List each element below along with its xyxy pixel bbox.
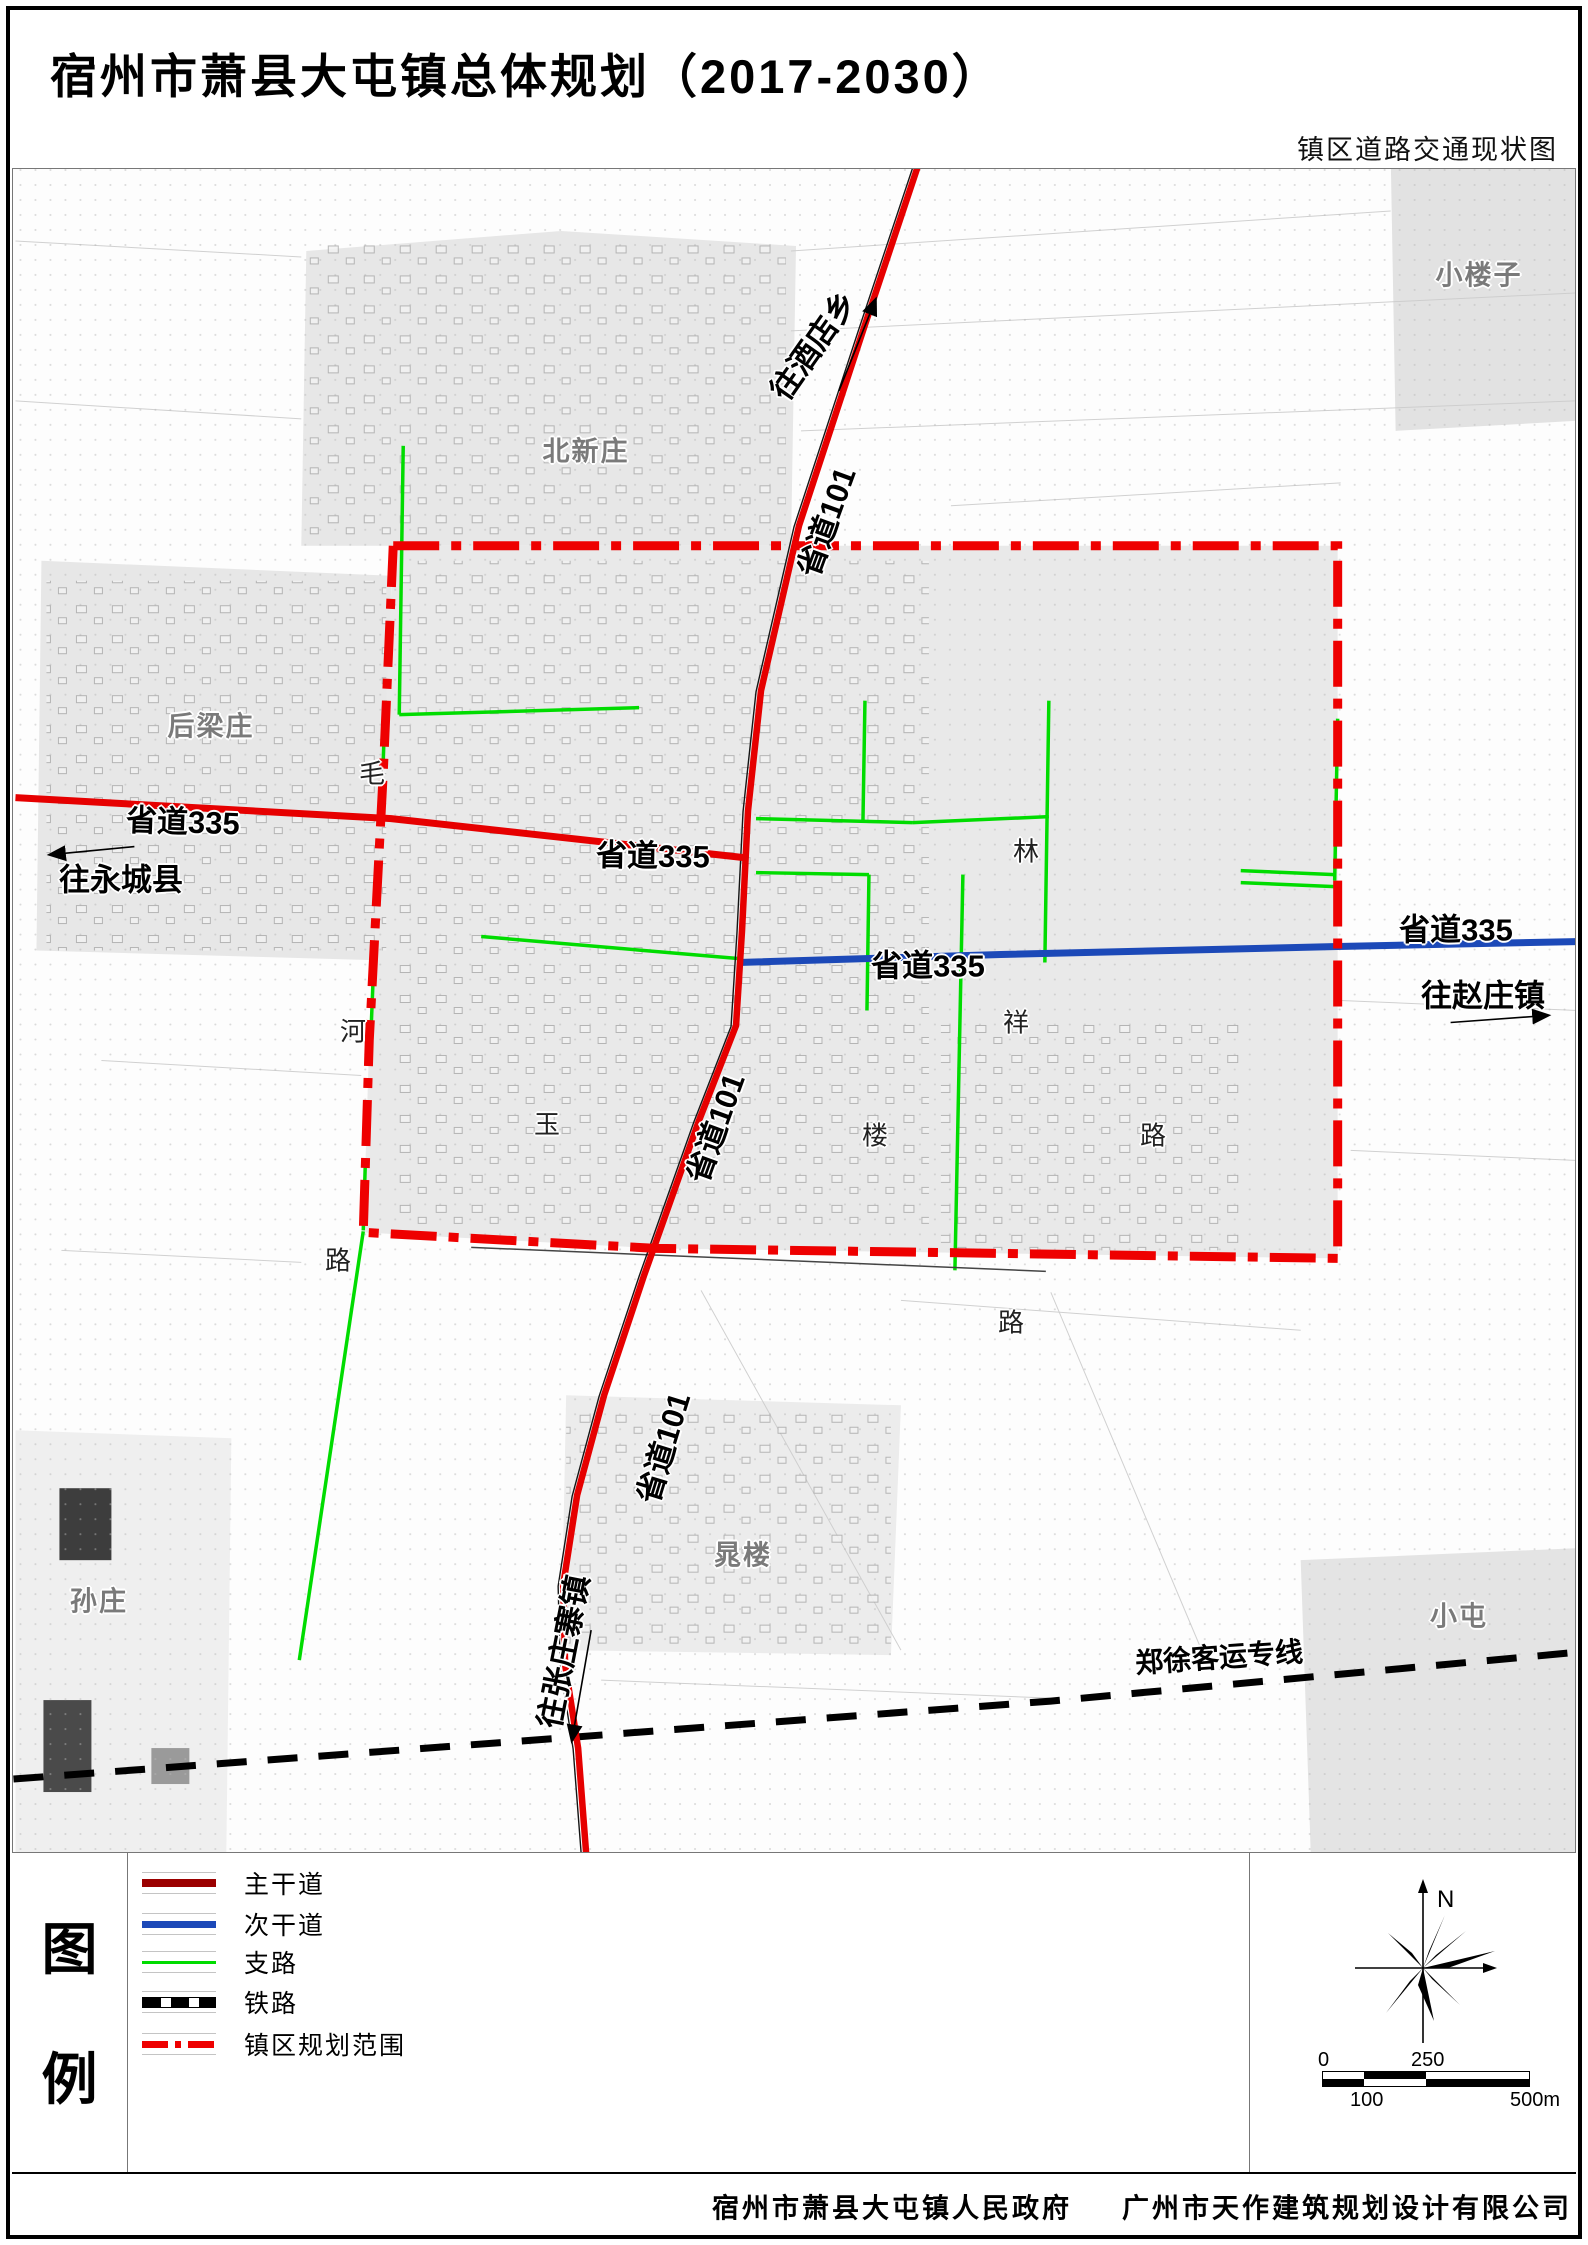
legend-item-secondary-road: 次干道 <box>142 1911 325 1937</box>
legend-swatch-secondary-road <box>142 1913 216 1935</box>
legend-item-main-road: 主干道 <box>142 1870 325 1896</box>
plan-sheet: 宿州市萧县大屯镇总体规划（2017-2030） 镇区道路交通现状图 <box>0 0 1588 2245</box>
legend-label-main-road: 主干道 <box>244 1865 325 1901</box>
legend-label-planning-boundary: 镇区规划范围 <box>244 2026 406 2062</box>
map-label-char-lu-south: 路 <box>998 1303 1024 1340</box>
map-label-to-yongchengxian: 往永城县 <box>59 855 183 900</box>
map-label-sunzhuang: 孙庄 <box>70 1580 128 1619</box>
scale-bar-body <box>1322 2071 1530 2087</box>
footer-design-firm: 广州市天作建筑规划设计有限公司 <box>1122 2187 1572 2226</box>
scale-tick-500m: 500m <box>1510 2089 1560 2112</box>
legend-swatch-railway <box>142 1991 216 2013</box>
legend-heading: 图 例 <box>12 1853 127 2172</box>
map-label-char-he: 河 <box>340 1012 366 1049</box>
legend-rows: 主干道次干道支路铁路镇区规划范围 <box>142 1853 1242 2172</box>
map-canvas: 省道335省道335省道335省道335省道101省道101省道101往酒店乡往… <box>12 168 1576 1853</box>
footer-government: 宿州市萧县大屯镇人民政府 <box>712 2187 1072 2226</box>
map-label-char-lin: 林 <box>1013 832 1039 869</box>
map-label-chaolou: 晁楼 <box>714 1534 772 1573</box>
map-label-houliangzhuang: 后梁庄 <box>168 705 255 744</box>
map-subtitle: 镇区道路交通现状图 <box>1297 128 1558 167</box>
compass-rose: N <box>1345 1873 1505 2049</box>
map-label-char-mao: 毛 <box>359 754 385 791</box>
map-label-s335-west-2: 省道335 <box>596 830 711 877</box>
map-label-xiaolouzi: 小楼子 <box>1436 254 1523 293</box>
compass-north-label: N <box>1437 1886 1454 1913</box>
legend-divider-right <box>1249 1853 1250 2172</box>
legend-panel: 图 例 主干道次干道支路铁路镇区规划范围 N 0250 <box>12 1853 1576 2172</box>
page-title: 宿州市萧县大屯镇总体规划（2017-2030） <box>50 38 1002 107</box>
map-label-to-zhaozhuangzhen: 往赵庄镇 <box>1421 971 1545 1016</box>
legend-label-branch-road: 支路 <box>244 1944 298 1980</box>
scale-bar: 0250 100500m <box>1318 2049 1544 2101</box>
map-label-s335-west-1: 省道335 <box>125 795 240 844</box>
legend-label-secondary-road: 次干道 <box>244 1906 325 1942</box>
map-label-char-lu-east: 路 <box>1140 1116 1166 1153</box>
scale-tick-250: 250 <box>1411 2049 1444 2072</box>
map-label-xiaotun: 小屯 <box>1430 1595 1488 1634</box>
map-label-s335-center: 省道335 <box>871 941 985 986</box>
scale-tick-0: 0 <box>1318 2049 1329 2072</box>
map-label-char-lu-west: 路 <box>325 1241 351 1278</box>
legend-item-railway: 铁路 <box>142 1989 298 2015</box>
footer-bar: 宿州市萧县大屯镇人民政府 广州市天作建筑规划设计有限公司 <box>12 2172 1576 2240</box>
title-block: 宿州市萧县大屯镇总体规划（2017-2030） 镇区道路交通现状图 <box>12 10 1576 168</box>
map-label-s335-east: 省道335 <box>1399 905 1513 950</box>
legend-label-railway: 铁路 <box>244 1984 298 2020</box>
scale-tick-100: 100 <box>1350 2089 1383 2112</box>
legend-item-branch-road: 支路 <box>142 1949 298 1975</box>
map-label-char-lou: 楼 <box>862 1116 888 1153</box>
legend-swatch-planning-boundary <box>142 2033 216 2055</box>
map-label-char-yu: 玉 <box>534 1105 560 1142</box>
map-graphics <box>13 169 1576 1853</box>
legend-heading-char-2: 例 <box>42 2035 98 2116</box>
legend-item-planning-boundary: 镇区规划范围 <box>142 2031 406 2057</box>
legend-swatch-main-road <box>142 1872 216 1894</box>
legend-divider-left <box>127 1853 128 2172</box>
legend-swatch-branch-road <box>142 1951 216 1973</box>
map-label-beixinzhuang: 北新庄 <box>543 430 630 469</box>
legend-heading-char-1: 图 <box>42 1905 98 1986</box>
map-label-char-xiang: 祥 <box>1003 1003 1029 1040</box>
